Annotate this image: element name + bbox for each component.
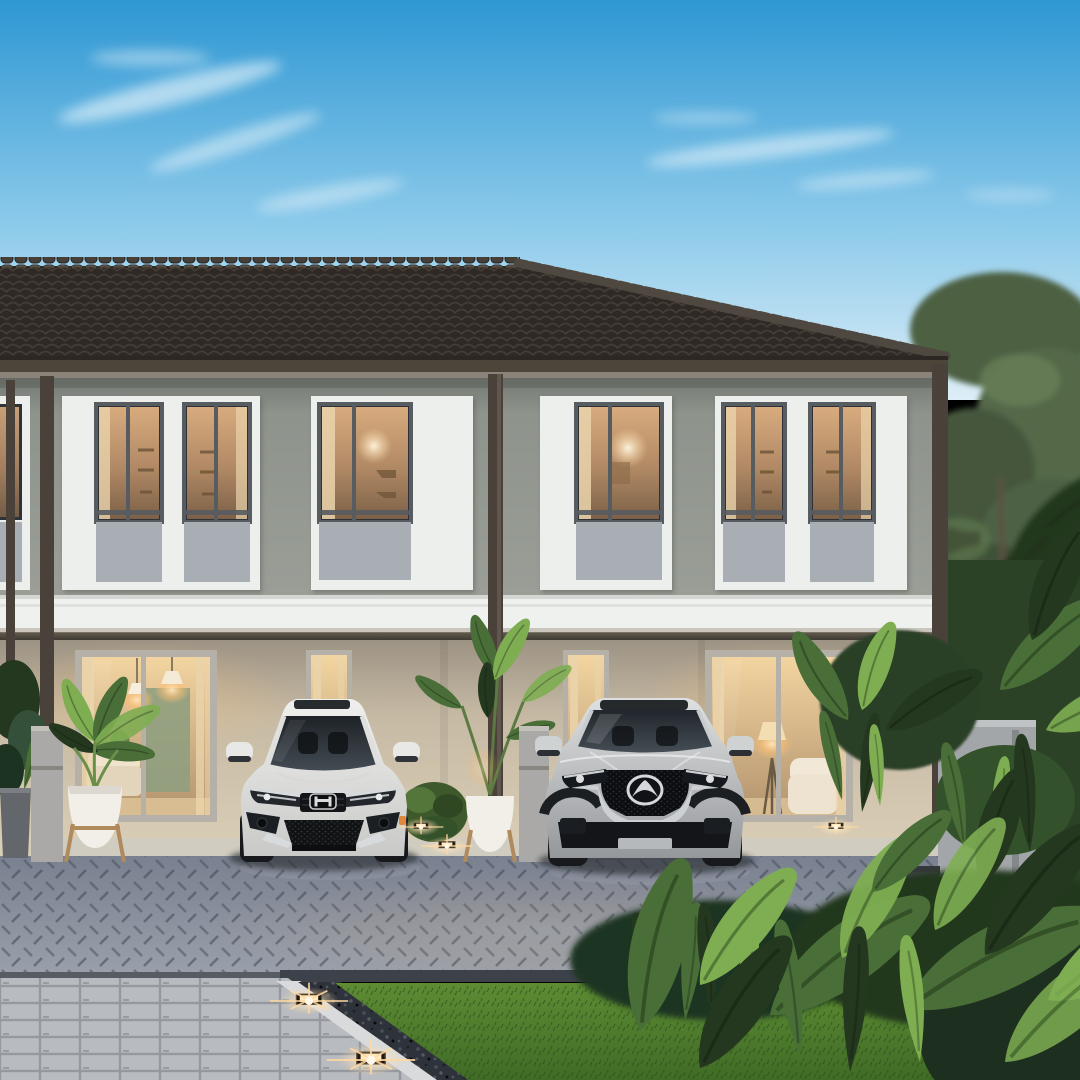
window xyxy=(96,404,162,522)
curtain xyxy=(196,656,204,816)
spandrel-panel xyxy=(723,522,785,582)
upper-window-assembly-a1 xyxy=(62,396,260,590)
downpipe xyxy=(40,376,54,730)
paving-edge-line xyxy=(0,972,290,978)
upper-window-assembly-a2 xyxy=(311,396,473,590)
spandrel-panel xyxy=(319,522,411,580)
door-mullion xyxy=(141,656,146,816)
spandrel-panel xyxy=(810,522,874,582)
townhouse-scene xyxy=(0,0,1080,1080)
fog-insert-right xyxy=(704,818,730,834)
spandrel-panel xyxy=(576,522,662,580)
fence-pillar xyxy=(31,726,63,862)
car-seat xyxy=(612,726,634,746)
rendered-image xyxy=(0,0,1080,1080)
sunroof xyxy=(294,700,350,709)
roof-ridge xyxy=(0,257,520,268)
eave-shadow xyxy=(0,378,948,388)
post-highlight xyxy=(497,374,501,856)
metal-planter xyxy=(0,788,31,858)
spandrel-panel xyxy=(96,522,162,582)
honda-h-logo xyxy=(310,794,336,809)
car-seat xyxy=(328,732,348,754)
window xyxy=(576,404,662,522)
fascia-lip xyxy=(0,372,948,378)
door-mullion xyxy=(776,656,781,816)
car-seat xyxy=(656,726,678,746)
window xyxy=(184,404,250,522)
car-seat xyxy=(298,732,318,754)
curtain xyxy=(205,656,210,816)
window xyxy=(810,404,874,522)
lower-fascia xyxy=(558,818,732,849)
gutter-shadow xyxy=(0,356,948,360)
upper-window-assembly-b1 xyxy=(540,396,672,590)
spandrel-panel xyxy=(184,522,250,582)
window xyxy=(319,404,411,522)
skid-plate xyxy=(618,838,672,849)
upper-window-assembly-b2 xyxy=(715,396,907,590)
sunroof xyxy=(600,700,688,710)
uplight-glow xyxy=(464,746,500,790)
fog-insert-left xyxy=(560,818,586,834)
mazda-wing-logo xyxy=(628,776,662,804)
upper-windows xyxy=(0,396,907,590)
window xyxy=(723,404,785,522)
